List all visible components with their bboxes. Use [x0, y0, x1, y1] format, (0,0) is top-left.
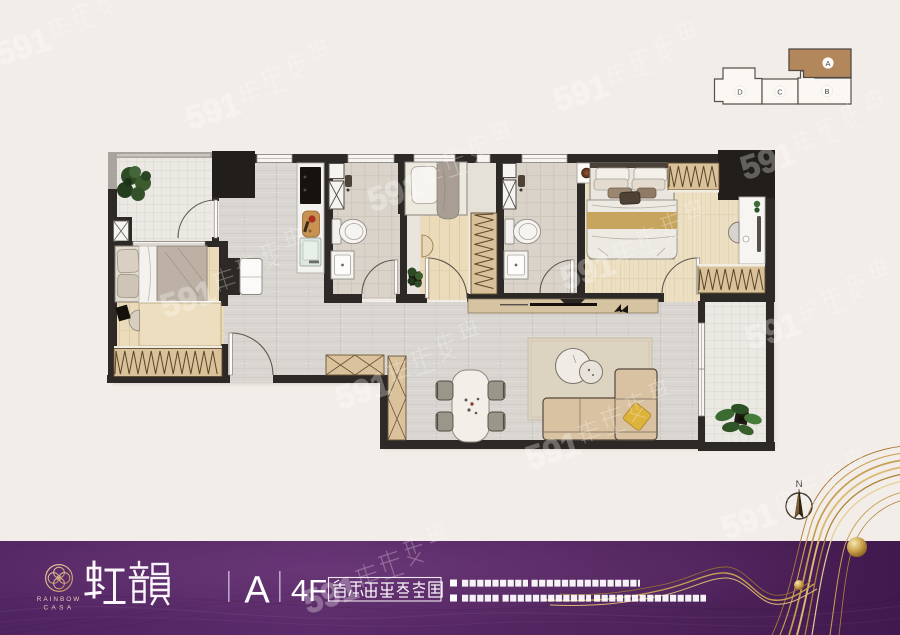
svg-text:A: A [244, 570, 270, 612]
svg-text:D: D [737, 87, 743, 96]
svg-text:B: B [824, 87, 829, 96]
svg-text:RAINBOW: RAINBOW [37, 596, 82, 603]
svg-text:CASA: CASA [43, 605, 74, 612]
svg-text:A: A [825, 59, 830, 68]
svg-text:C: C [777, 87, 783, 96]
